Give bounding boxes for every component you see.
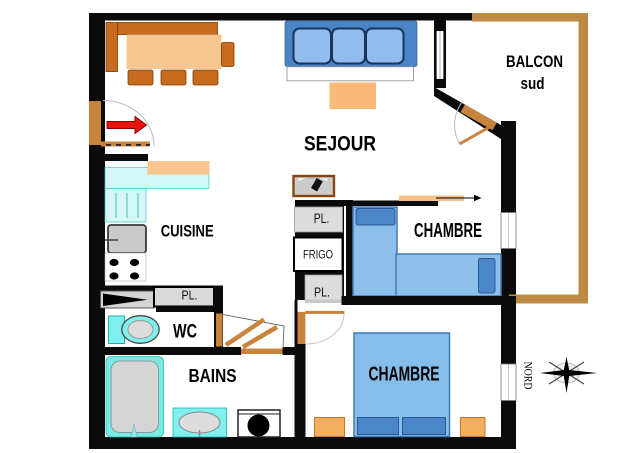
- svg-text:WC: WC: [173, 322, 197, 343]
- svg-text:FRIGO: FRIGO: [303, 250, 333, 262]
- svg-text:PL.: PL.: [314, 285, 330, 300]
- svg-text:CUISINE: CUISINE: [161, 222, 214, 240]
- svg-text:PL.: PL.: [182, 288, 198, 303]
- svg-text:sud: sud: [521, 74, 545, 93]
- svg-text:SEJOUR: SEJOUR: [304, 133, 376, 156]
- svg-text:CHAMBRE: CHAMBRE: [369, 364, 440, 386]
- svg-text:BALCON: BALCON: [506, 52, 563, 71]
- svg-text:NORD: NORD: [522, 362, 536, 390]
- svg-text:BAINS: BAINS: [189, 366, 237, 386]
- svg-text:CHAMBRE: CHAMBRE: [414, 220, 482, 242]
- svg-text:PL.: PL.: [314, 210, 330, 226]
